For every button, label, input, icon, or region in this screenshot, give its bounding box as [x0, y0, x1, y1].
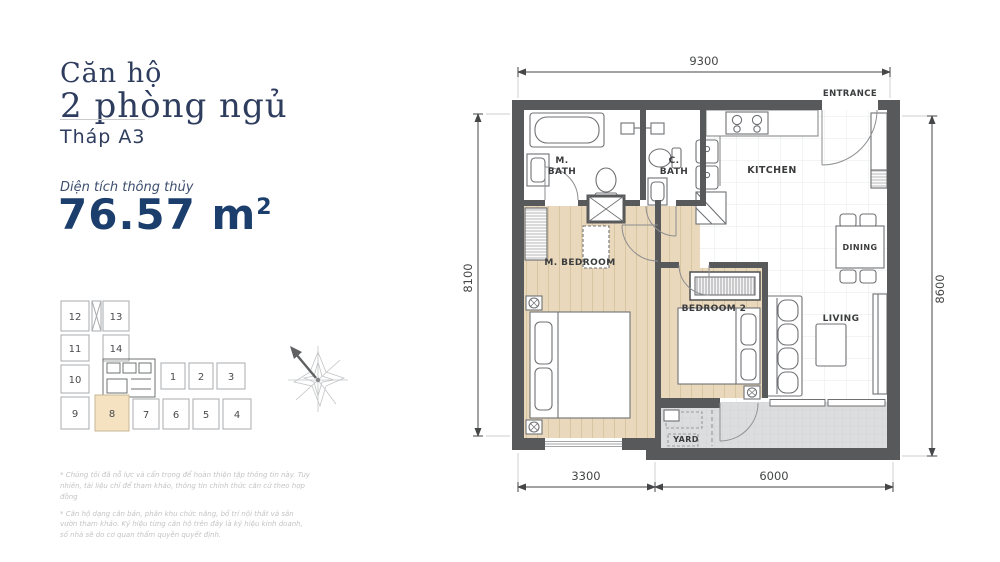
label-cbath-2: BATH [660, 167, 688, 177]
floor-balcony [712, 402, 887, 448]
stove [726, 112, 768, 134]
keyplan-unit-3: 3 [228, 372, 234, 383]
dim-bottom-right: 6000 [759, 469, 788, 483]
label-mbath-2: BATH [548, 167, 576, 177]
sliding-door-panel-1 [770, 400, 825, 407]
compass-center [316, 378, 320, 382]
label-mbath-1: M. [555, 156, 568, 166]
keyplan-unit-14: 14 [110, 344, 123, 355]
keyplan-unit-8: 8 [109, 409, 115, 420]
keyplan-unit-5: 5 [203, 410, 209, 421]
mbedroom-ac-louvre [525, 208, 547, 260]
mbath-sink [527, 154, 549, 186]
washer-box [588, 196, 624, 222]
mbedroom-nightstand-top [526, 296, 542, 310]
coffee-table [816, 324, 846, 366]
bedroom2-wardrobe [690, 272, 760, 300]
bedroom2-bed [678, 308, 760, 384]
compass-north-arrow [290, 346, 316, 378]
dim-top: 9300 [689, 54, 718, 68]
bedroom2-nightstand [744, 386, 760, 399]
page-title-line1: Căn hộ [60, 58, 162, 89]
keyplan-unit-6: 6 [173, 410, 179, 421]
keyplan-unit-13: 13 [110, 312, 123, 323]
footnote-2: * Căn hộ dạng căn bản, phân khu chức năn… [60, 509, 312, 542]
dim-right: 8600 [933, 274, 947, 303]
mbedroom-nightstand-bottom [526, 420, 542, 434]
label-yard: YARD [672, 435, 699, 444]
compass-rose [280, 328, 356, 428]
keyplan-unit-2: 2 [198, 372, 204, 383]
footnotes: * Chúng tôi đã nỗ lực và cẩn trọng để ho… [60, 470, 312, 547]
area-unit: m [196, 190, 256, 239]
keyplan-unit-7: 7 [143, 410, 149, 421]
label-dining: DINING [843, 243, 878, 252]
entry-closet [871, 113, 887, 188]
footnote-1: * Chúng tôi đã nỗ lực và cẩn trọng để ho… [60, 470, 312, 503]
yard-shelf [664, 410, 679, 421]
bathtub [530, 113, 604, 147]
apartment-floorplan-page: Căn hộ 2 phòng ngủ Tháp A3 Diện tích thô… [0, 0, 1000, 562]
area-exponent: 2 [256, 195, 272, 220]
label-living: LIVING [823, 314, 860, 324]
keyplan-unit-10: 10 [69, 375, 82, 386]
label-entrance: ENTRANCE [823, 89, 877, 99]
tower-label: Tháp A3 [60, 119, 145, 148]
key-plan: 12 13 11 14 10 1 2 3 9 8 7 6 5 4 [55, 293, 260, 443]
keyplan-unit-12: 12 [69, 312, 82, 323]
sliding-door-panel-2 [828, 400, 885, 407]
label-mbedroom: M. BEDROOM [544, 258, 615, 268]
floor-plan: ENTRANCE M. BATH C. BATH KITCHEN DINING … [450, 50, 950, 520]
floor-vestibule [661, 206, 700, 268]
tv-cabinet [873, 294, 887, 394]
mbedroom-bed [530, 312, 630, 418]
keyplan-unit-1: 1 [170, 372, 176, 383]
area-value: 76.57 m2 [58, 190, 273, 239]
keyplan-core-detail [103, 359, 155, 397]
label-bedroom2: BEDROOM 2 [682, 304, 747, 314]
keyplan-unit-9: 9 [72, 409, 78, 420]
keyplan-unit-11: 11 [69, 344, 82, 355]
sofa [766, 296, 802, 396]
keyplan-unit-4: 4 [234, 410, 240, 421]
area-number: 76.57 [58, 190, 196, 239]
label-cbath-1: C. [669, 156, 680, 166]
label-kitchen: KITCHEN [747, 165, 797, 176]
dim-left: 8100 [461, 263, 475, 292]
dim-bottom-left: 3300 [571, 469, 600, 483]
